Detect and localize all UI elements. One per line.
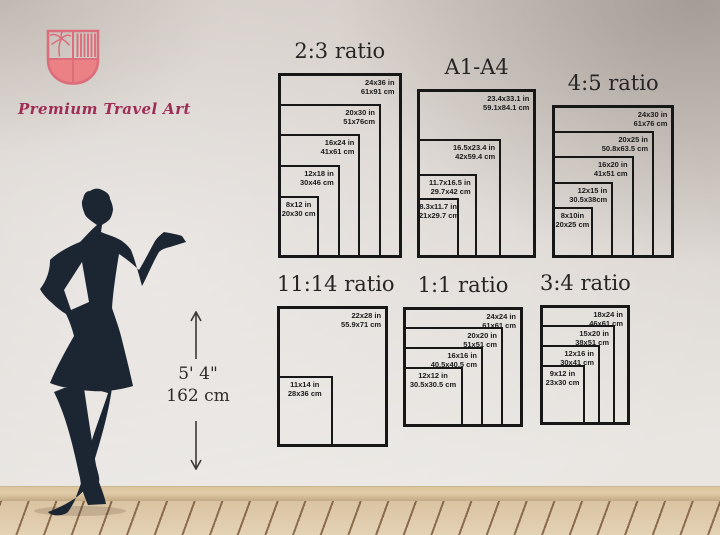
size-cm: 23x30 cm — [542, 378, 583, 387]
size-label: 12x12 in30.5x30.5 cm — [405, 371, 461, 389]
size-cm: 59.1x84.1 cm — [422, 103, 529, 112]
down-arrow-icon — [189, 419, 203, 470]
size-inches: 20x30 in — [282, 108, 375, 117]
size-box: 12x12 in30.5x30.5 cm — [403, 367, 463, 427]
size-inches: 23.4x33.1 in — [422, 94, 529, 103]
size-label: 8.3x11.7 in21x29.7 cm — [419, 202, 457, 220]
size-cm: 61x91 cm — [283, 87, 395, 96]
size-inches: 8x12 in — [280, 200, 317, 209]
size-inches: 20x20 in — [407, 331, 497, 340]
size-label: 8x12 in20x30 cm — [280, 200, 317, 218]
size-inches: 9x12 in — [542, 369, 583, 378]
size-label: 12x15 in30.5x38cm — [556, 186, 607, 204]
size-label: 22x28 in55.9x71 cm — [282, 311, 381, 329]
room-scene: Premium Travel Art 5' 4" 162 cm 2:3 rati… — [0, 0, 720, 535]
size-inches: 11.7x16.5 in — [421, 178, 471, 187]
size-box: 11x14 in28x36 cm — [277, 376, 333, 447]
size-cm: 41x61 cm — [282, 147, 354, 156]
size-cm: 41x51 cm — [556, 169, 628, 178]
chart-title: A1-A4 — [417, 55, 536, 81]
size-inches: 24x24 in — [408, 312, 516, 321]
size-cm: 28x36 cm — [279, 389, 331, 398]
size-inches: 11x14 in — [279, 380, 331, 389]
size-cm: 51x76cm — [282, 117, 375, 126]
size-inches: 12x15 in — [556, 186, 607, 195]
size-label: 11x14 in28x36 cm — [279, 380, 331, 398]
size-inches: 16x16 in — [407, 351, 477, 360]
size-inches: 16.5x23.4 in — [421, 143, 495, 152]
brand-name: Premium Travel Art — [18, 100, 168, 118]
size-label: 20x30 in51x76cm — [282, 108, 375, 126]
chart-title: 3:4 ratio — [540, 271, 630, 297]
size-cm: 30.5x30.5 cm — [405, 380, 461, 389]
woman-silhouette — [20, 180, 200, 520]
size-inches: 12x18 in — [282, 169, 334, 178]
size-cm: 29.7x42 cm — [421, 187, 471, 196]
size-inches: 18x24 in — [545, 310, 623, 319]
size-cm: 42x59.4 cm — [421, 152, 495, 161]
chart-title: 11:14 ratio — [277, 272, 388, 298]
size-label: 16x20 in41x51 cm — [556, 160, 628, 178]
size-inches: 16x20 in — [556, 160, 628, 169]
chart-title: 4:5 ratio — [552, 71, 674, 97]
size-label: 24x30 in61x76 cm — [557, 110, 667, 128]
size-label: 23.4x33.1 in59.1x84.1 cm — [422, 94, 529, 112]
size-inches: 24x30 in — [557, 110, 667, 119]
shield-icon — [45, 28, 101, 86]
size-cm: 20x25 cm — [554, 220, 591, 229]
size-label: 9x12 in23x30 cm — [542, 369, 583, 387]
size-box: 8.3x11.7 in21x29.7 cm — [417, 198, 459, 258]
size-inches: 12x12 in — [405, 371, 461, 380]
size-cm: 30x46 cm — [282, 178, 334, 187]
palm-tree-icon — [50, 31, 71, 57]
size-label: 16.5x23.4 in42x59.4 cm — [421, 143, 495, 161]
size-cm: 61x76 cm — [557, 119, 667, 128]
size-inches: 8x10in — [554, 211, 591, 220]
size-cm: 21x29.7 cm — [419, 211, 457, 220]
size-inches: 12x16 in — [544, 349, 594, 358]
size-label: 12x18 in30x46 cm — [282, 169, 334, 187]
size-box: 8x12 in20x30 cm — [278, 196, 319, 258]
size-box: 8x10in20x25 cm — [552, 207, 593, 258]
size-inches: 20x25 in — [556, 135, 648, 144]
size-cm: 50.8x63.5 cm — [556, 144, 648, 153]
brand-logo: Premium Travel Art — [18, 28, 168, 118]
chart-title: 2:3 ratio — [278, 39, 402, 65]
size-cm: 20x30 cm — [280, 209, 317, 218]
size-box: 9x12 in23x30 cm — [540, 365, 585, 425]
size-inches: 8.3x11.7 in — [419, 202, 457, 211]
size-label: 24x36 in61x91 cm — [283, 78, 395, 96]
size-inches: 22x28 in — [282, 311, 381, 320]
size-label: 11.7x16.5 in29.7x42 cm — [421, 178, 471, 196]
size-label: 8x10in20x25 cm — [554, 211, 591, 229]
size-cm: 30.5x38cm — [556, 195, 607, 204]
size-cm: 55.9x71 cm — [282, 320, 381, 329]
size-label: 20x25 in50.8x63.5 cm — [556, 135, 648, 153]
size-label: 16x24 in41x61 cm — [282, 138, 354, 156]
height-cm: 162 cm — [156, 385, 240, 407]
size-inches: 16x24 in — [282, 138, 354, 147]
chart-title: 1:1 ratio — [403, 273, 523, 299]
height-feet: 5' 4" — [156, 364, 240, 385]
size-inches: 24x36 in — [283, 78, 395, 87]
up-arrow-icon — [189, 311, 203, 360]
size-inches: 15x20 in — [544, 329, 609, 338]
